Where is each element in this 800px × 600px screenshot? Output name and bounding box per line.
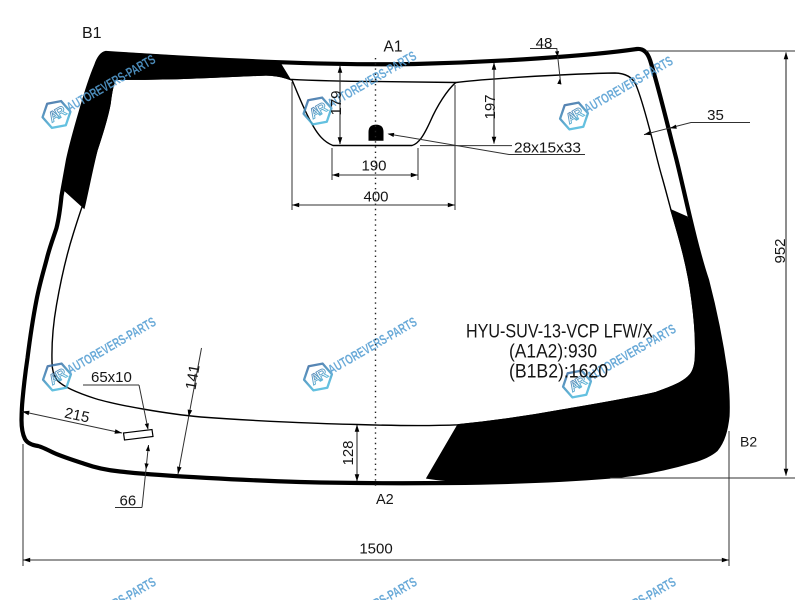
svg-text:128: 128 <box>340 440 357 465</box>
svg-text:28x15x33: 28x15x33 <box>514 139 581 156</box>
svg-text:179: 179 <box>328 90 345 115</box>
svg-text:197: 197 <box>482 94 499 119</box>
svg-text:952: 952 <box>772 238 789 263</box>
svg-text:66: 66 <box>120 493 137 510</box>
svg-text:48: 48 <box>536 35 553 52</box>
svg-text:400: 400 <box>363 189 388 206</box>
svg-text:A1: A1 <box>384 39 403 56</box>
svg-text:190: 190 <box>361 158 386 175</box>
svg-text:65x10: 65x10 <box>91 369 132 386</box>
svg-text:A2: A2 <box>376 492 394 508</box>
svg-text:35: 35 <box>707 107 724 124</box>
svg-text:B2: B2 <box>740 434 757 450</box>
svg-text:B1: B1 <box>82 25 102 42</box>
svg-text:HYU-SUV-13-VCP LFW/X: HYU-SUV-13-VCP LFW/X <box>466 322 653 343</box>
svg-text:(A1A2):930: (A1A2):930 <box>509 342 597 363</box>
svg-text:1500: 1500 <box>359 541 392 558</box>
svg-text:(B1B2):1620: (B1B2):1620 <box>509 362 608 383</box>
